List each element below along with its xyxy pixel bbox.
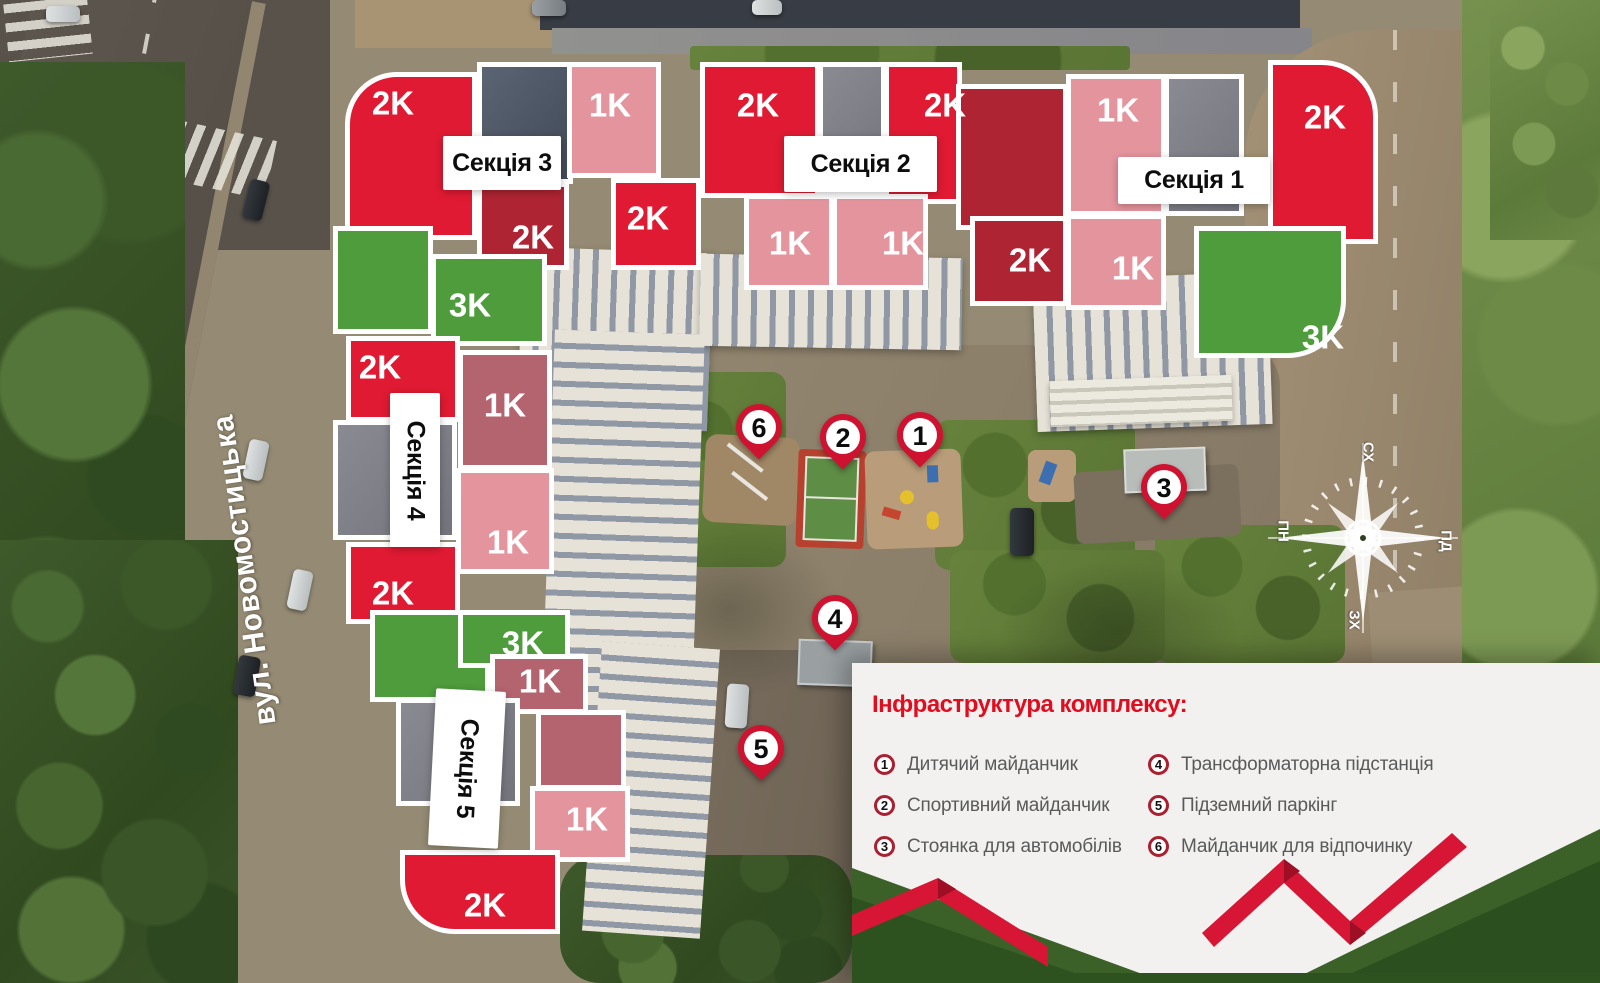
legend-number-badge: 6 <box>1148 836 1169 857</box>
map-pin-3[interactable]: 3 <box>1141 464 1187 530</box>
section-label-text: Секція 5 <box>450 718 484 819</box>
pin-number: 4 <box>812 596 858 642</box>
top-road <box>540 0 1300 30</box>
unit-type-2k[interactable]: 2K <box>512 221 554 254</box>
unit-type-1k[interactable]: 1K <box>882 227 924 260</box>
slide-yellow-2 <box>926 511 939 529</box>
legend-item-4: 4Трансформаторна підстанція <box>1148 751 1588 778</box>
pin-number: 2 <box>820 415 866 461</box>
playground-2 <box>1028 450 1076 502</box>
legend-number-badge: 5 <box>1148 795 1169 816</box>
unit-type-2k[interactable]: 2K <box>627 202 669 235</box>
section-label-3[interactable]: Секція 3 <box>443 136 561 190</box>
legend-item-5: 5Підземний паркінг <box>1148 792 1588 819</box>
legend-item-label: Спортивний майданчик <box>907 795 1109 817</box>
trees-bottom-left <box>0 540 238 983</box>
unit-type-2k[interactable]: 2K <box>1304 101 1346 134</box>
legend-item-3: 3Стоянка для автомобілів <box>874 833 1174 860</box>
unit-type-2k[interactable]: 2K <box>1009 244 1051 277</box>
car-3 <box>752 0 782 15</box>
workout-bars-2 <box>731 471 768 501</box>
unit-type-2k[interactable]: 2K <box>372 577 414 610</box>
car-9 <box>724 683 749 728</box>
trees-top-right <box>1490 0 1600 240</box>
unit-cell[interactable] <box>1268 60 1378 244</box>
unit-type-2k[interactable]: 2K <box>372 87 414 120</box>
play-structure-red <box>882 506 902 520</box>
car-8 <box>1010 508 1034 556</box>
unit-type-1k[interactable]: 1K <box>1112 252 1154 285</box>
pin-number: 5 <box>738 726 784 772</box>
section-label-text: Секція 3 <box>452 149 552 178</box>
car-2 <box>532 0 566 16</box>
unit-type-3k[interactable]: 3K <box>1302 321 1344 354</box>
legend-item-label: Трансформаторна підстанція <box>1181 754 1433 776</box>
legend-number-badge: 2 <box>874 795 895 816</box>
legend-number-badge: 1 <box>874 754 895 775</box>
unit-type-2k[interactable]: 2K <box>924 89 966 122</box>
car-1 <box>46 6 80 22</box>
map-pin-1[interactable]: 1 <box>897 412 943 478</box>
unit-type-2k[interactable]: 2K <box>359 351 401 384</box>
legend-number-badge: 3 <box>874 836 895 857</box>
legend-item-6: 6Майданчик для відпочинку <box>1148 833 1588 860</box>
unit-cell[interactable] <box>956 84 1068 230</box>
pin-number: 3 <box>1141 465 1187 511</box>
unit-type-3k[interactable]: 3K <box>502 627 544 660</box>
pin-number: 1 <box>897 413 943 459</box>
section-label-text: Секція 1 <box>1144 166 1244 195</box>
legend-item-1: 1Дитячий майданчик <box>874 751 1174 778</box>
play-structure-blue-2 <box>1039 461 1058 486</box>
compass-rose <box>1268 443 1458 633</box>
slide-yellow <box>900 490 914 504</box>
unit-cell[interactable] <box>536 710 626 790</box>
legend-item-2: 2Спортивний майданчик <box>874 792 1174 819</box>
unit-type-3k[interactable]: 3K <box>449 289 491 322</box>
court-centerline <box>806 497 856 501</box>
section-label-text: Секція 4 <box>401 420 430 520</box>
map-pin-5[interactable]: 5 <box>738 725 784 791</box>
unit-type-1k[interactable]: 1K <box>566 803 608 836</box>
section-label-2[interactable]: Секція 2 <box>784 136 937 192</box>
legend-item-label: Дитячий майданчик <box>907 754 1078 776</box>
map-pin-6[interactable]: 6 <box>736 404 782 470</box>
compass-west-label: ЗХ <box>1346 610 1363 629</box>
compass-north-label: ПН <box>1275 520 1292 542</box>
legend-column-left: 1Дитячий майданчик2Спортивний майданчик3… <box>874 751 1174 874</box>
unit-type-1k[interactable]: 1K <box>484 389 526 422</box>
legend-item-label: Стоянка для автомобілів <box>907 836 1122 858</box>
unit-type-2k[interactable]: 2K <box>464 889 506 922</box>
section-label-text: Секція 2 <box>811 150 911 179</box>
legend-item-label: Підземний паркінг <box>1181 795 1337 817</box>
genplan-map: Секція 3Секція 2Секція 1Секція 4Секція 5… <box>0 0 1600 983</box>
legend-item-label: Майданчик для відпочинку <box>1181 836 1412 858</box>
compass-east-label: СХ <box>1360 442 1377 462</box>
unit-type-1k[interactable]: 1K <box>589 89 631 122</box>
unit-cell[interactable] <box>333 226 433 334</box>
unit-type-1k[interactable]: 1K <box>487 526 529 559</box>
infrastructure-panel: Інфраструктура комплексу: 1Дитячий майда… <box>852 663 1600 983</box>
legend-title: Інфраструктура комплексу: <box>872 691 1187 719</box>
unit-type-2k[interactable]: 2K <box>737 89 779 122</box>
map-pin-2[interactable]: 2 <box>820 414 866 480</box>
section-label-4[interactable]: Секція 4 <box>390 393 440 547</box>
pin-number: 6 <box>736 405 782 451</box>
unit-type-1k[interactable]: 1K <box>519 665 561 698</box>
legend-number-badge: 4 <box>1148 754 1169 775</box>
section-label-5[interactable]: Секція 5 <box>428 688 506 848</box>
unit-type-1k[interactable]: 1K <box>769 227 811 260</box>
map-pin-4[interactable]: 4 <box>812 595 858 661</box>
building-roof-steps <box>1049 375 1232 427</box>
section-label-1[interactable]: Секція 1 <box>1118 157 1270 204</box>
car-6 <box>286 568 314 611</box>
legend-column-right: 4Трансформаторна підстанція5Підземний па… <box>1148 751 1588 874</box>
unit-type-1k[interactable]: 1K <box>1097 94 1139 127</box>
compass-south-label: ПД <box>1438 530 1455 551</box>
